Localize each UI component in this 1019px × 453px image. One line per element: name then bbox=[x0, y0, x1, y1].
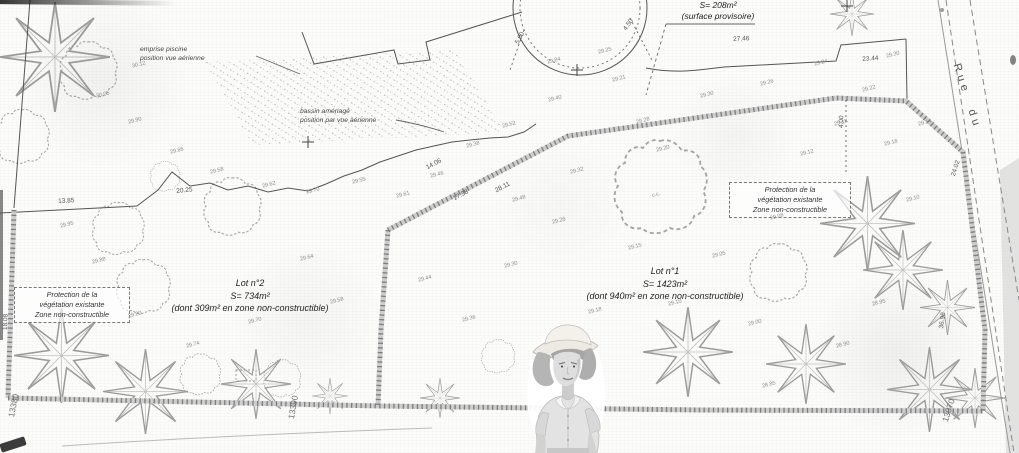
basin-note: bassin aménagé position par vue aérienne bbox=[300, 108, 376, 126]
conifer-tree-icon bbox=[887, 347, 972, 432]
conifer-tree-icon bbox=[830, 0, 874, 36]
lot1-detail: (dont 940m² en zone non-constructible) bbox=[550, 290, 780, 303]
conifer-tree-icon bbox=[766, 324, 846, 404]
scan-edge-mark bbox=[0, 190, 3, 340]
pool-hatch-area bbox=[205, 50, 505, 145]
scan-speck bbox=[1010, 55, 1016, 65]
dimension-label: 23.44 bbox=[862, 55, 879, 63]
conifer-tree-icon bbox=[103, 349, 188, 434]
provisional-surface-note: S= 208m² (surface provisoire) bbox=[648, 0, 788, 22]
cross-icon bbox=[841, 0, 853, 12]
conifer-trees bbox=[0, 0, 1005, 434]
conifer-tree-icon bbox=[312, 378, 348, 414]
deciduous-tree-icon bbox=[93, 202, 145, 254]
deciduous-tree-icon bbox=[482, 339, 515, 373]
conifer-tree-icon bbox=[643, 307, 733, 397]
deciduous-tree-icon bbox=[150, 161, 180, 191]
scan-speck bbox=[940, 8, 944, 12]
protection-zone-right: Protection de la végétation existante Zo… bbox=[729, 182, 851, 218]
conifer-tree-icon bbox=[945, 368, 1005, 428]
provisional-surface-value: S= 208m² bbox=[648, 0, 788, 11]
conifer-tree-icon bbox=[920, 280, 975, 335]
dimension-label: 4.00 bbox=[838, 115, 845, 128]
deciduous-tree-icon bbox=[0, 109, 49, 163]
lot1-label: Lot n°1 S= 1423m² (dont 940m² en zone no… bbox=[550, 265, 780, 303]
conifer-tree-icon bbox=[0, 2, 110, 112]
dimension-label: 27.46 bbox=[733, 35, 750, 43]
dimension-label: 13.85 bbox=[58, 197, 75, 205]
lot1-surface: S= 1423m² bbox=[550, 278, 780, 291]
pool-note: emprise piscine position vue aérienne bbox=[140, 46, 205, 64]
conifer-tree-icon bbox=[863, 230, 943, 310]
photo-woman bbox=[527, 324, 605, 453]
deciduous-tree-icon bbox=[180, 354, 221, 395]
lot2-surface: S= 734m² bbox=[140, 290, 360, 303]
deciduous-tree-icon bbox=[204, 178, 261, 236]
protection-zone-left: Protection de la végétation existante Zo… bbox=[14, 287, 130, 323]
lot1-number: Lot n°1 bbox=[550, 265, 780, 278]
conifer-tree-icon bbox=[420, 378, 460, 418]
provisional-surface-caption: (surface provisoire) bbox=[648, 11, 788, 22]
lot2-detail: (dont 309m² en zone non-constructible) bbox=[140, 302, 360, 315]
plan-linework bbox=[0, 0, 1019, 453]
site-plan: S= 208m² (surface provisoire) emprise pi… bbox=[0, 0, 1019, 453]
boundary-lines bbox=[0, 0, 1019, 453]
dimension-label: 18.08 bbox=[2, 314, 10, 331]
deciduous-tree-icon bbox=[615, 140, 707, 233]
lot2-label: Lot n°2 S= 734m² (dont 309m² en zone non… bbox=[140, 277, 360, 315]
lot2-number: Lot n°2 bbox=[140, 277, 360, 290]
deciduous-tree-icon bbox=[264, 360, 301, 397]
